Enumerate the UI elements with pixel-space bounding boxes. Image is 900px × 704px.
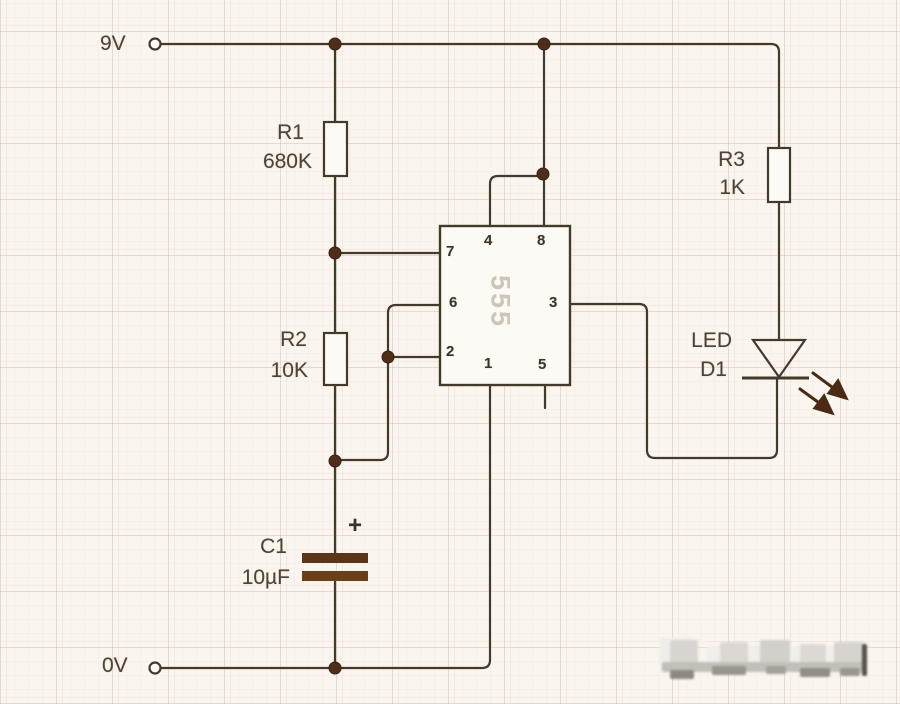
capacitor-plate-top [302, 553, 368, 563]
wire-pin6-down [335, 305, 440, 460]
junction-c1-gnd [329, 662, 341, 674]
c1-polarity-mark: + [348, 512, 362, 540]
ic-pin-6: 6 [449, 295, 457, 311]
led-arrow-1-head [829, 381, 846, 398]
supply-label-0v: 0V [102, 654, 128, 678]
junction-r2-c1 [329, 455, 341, 467]
r3-value: 1K [661, 176, 745, 200]
junction-rail-r1 [329, 38, 341, 50]
led-designator: D1 [659, 358, 727, 382]
circuit-diagram: 9V 0V R1 680K R2 10K R3 1K C1 10µF + LED… [0, 0, 900, 704]
wire-0v-rail-pin1 [161, 385, 490, 668]
led-type-label: LED [664, 329, 732, 353]
ic-part-number: 555 [485, 275, 516, 329]
led-arrow-2-head [815, 396, 832, 413]
r3-name: R3 [677, 148, 745, 172]
c1-value: 10µF [206, 566, 290, 590]
watermark-pixelated [648, 630, 876, 684]
ic-pin-1: 1 [484, 356, 492, 372]
junction-pin4-pin8 [537, 168, 549, 180]
resistor-r3-body [768, 148, 790, 202]
r2-value: 10K [224, 359, 308, 383]
ic-pin-8: 8 [537, 233, 545, 249]
supply-label-9v: 9V [100, 32, 126, 56]
ic-pin-3: 3 [549, 295, 557, 311]
ic-pin-2: 2 [446, 344, 454, 360]
r2-name: R2 [239, 328, 307, 352]
capacitor-plate-bottom [302, 571, 368, 581]
terminal-0v [150, 663, 161, 674]
r1-value: 680K [228, 150, 312, 174]
c1-name: C1 [219, 535, 287, 559]
ic-pin-5: 5 [538, 357, 546, 373]
led-triangle [753, 340, 805, 377]
ic-pin-7: 7 [446, 244, 454, 260]
ic-pin-4: 4 [484, 233, 492, 249]
terminal-9v [150, 39, 161, 50]
junction-pin2-pin6 [382, 351, 394, 363]
resistor-r1-body [324, 122, 347, 176]
resistor-r2-body [324, 333, 347, 385]
junction-r1-pin7 [329, 247, 341, 259]
junction-rail-pin8 [538, 38, 550, 50]
wire-pin4-jog [490, 176, 543, 226]
r1-name: R1 [236, 121, 304, 145]
